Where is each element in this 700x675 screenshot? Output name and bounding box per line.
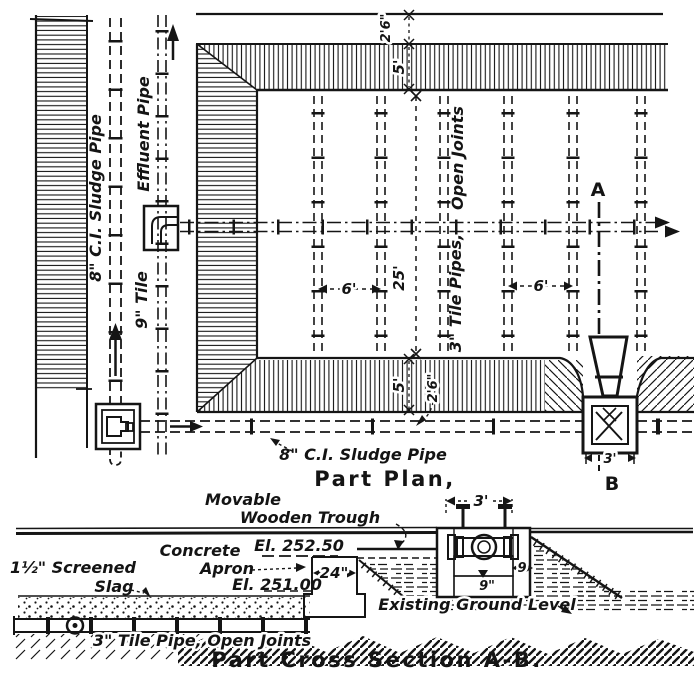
dim-bed-width-label: 25' <box>390 265 408 290</box>
bed-embankment <box>196 14 694 412</box>
dim-top-slope-label: 5' <box>390 59 408 74</box>
pipe-flange <box>504 537 510 557</box>
dim-top-berm-label: 2'6" <box>379 14 394 43</box>
part-plan: 8" C.I. Sludge Pipe Effluent Pipe 9" Til… <box>30 10 694 495</box>
plan-title: Part Plan, <box>314 467 455 491</box>
dim-spacing-left-label: 6' <box>341 280 356 298</box>
elevation-top-label: El. 252.50 <box>254 536 344 555</box>
embankment-fan-left <box>545 360 583 412</box>
sludge-pipe-bottom-label: 8" C.I. Sludge Pipe <box>279 445 447 464</box>
sludge-pipe-vertical-label: 8" C.I. Sludge Pipe <box>86 114 105 282</box>
cross-section: 3' 9 9" 24" Movable Wooden Trough El. 25… <box>10 490 694 672</box>
dim-spacing-right-label: 6' <box>533 277 548 295</box>
dim-wall-bottom-arrow <box>478 570 488 578</box>
tile-lateral <box>637 96 645 355</box>
left-wall <box>30 15 93 458</box>
tile-laterals-label: 3" Tile Pipes, <box>446 234 465 352</box>
dim-apron-label: 24" <box>320 564 349 582</box>
dim-trough-label: 3' <box>473 492 488 510</box>
tile-main-label: 9" Tile <box>132 271 151 329</box>
section-marker-b: B <box>605 473 619 495</box>
pipe-flange <box>457 537 463 557</box>
screened-label-1: 1½" Screened <box>10 558 136 577</box>
section-marker-a: A <box>591 179 606 201</box>
dim-wall-bottom-label: 9" <box>479 579 495 594</box>
tile-lateral <box>314 96 322 355</box>
section-title: Part Cross Section A-B. <box>211 648 542 672</box>
flow-arrow-right-icon <box>190 421 203 432</box>
movable-label-1: Movable <box>205 490 281 509</box>
existing-ground-label: Existing Ground Level <box>378 595 576 614</box>
slag-layer <box>18 596 310 618</box>
tile-lateral <box>377 96 385 355</box>
engineering-drawing: 8" C.I. Sludge Pipe Effluent Pipe 9" Til… <box>0 0 700 675</box>
valve-icon <box>603 408 616 421</box>
tile-lateral <box>569 96 577 355</box>
gate-valve-box <box>96 404 140 449</box>
dim-bottom-slope-label: 5' <box>390 377 408 392</box>
dim-wall-side-label: 9 <box>517 561 526 576</box>
screened-label-2: Slag <box>94 577 133 596</box>
tile-lateral <box>504 96 512 355</box>
wooden-trough-section <box>357 549 438 558</box>
tile-laterals <box>314 96 645 355</box>
open-joints-label: Open Joints <box>448 106 467 210</box>
valve-icon <box>596 412 622 440</box>
dim-outlet-box-label: 3' <box>603 452 616 467</box>
trough-funnel <box>590 337 627 396</box>
embankment-fan-right <box>637 356 694 412</box>
top-edge <box>16 528 693 534</box>
concrete-leader <box>252 563 306 572</box>
junction-box <box>144 206 178 250</box>
elevation-apron-label: El. 251.00 <box>232 575 322 594</box>
flow-arrow-right-icon <box>665 226 680 238</box>
sludge-pipe-vertical <box>109 18 122 465</box>
flow-arrow-up-icon <box>167 24 179 41</box>
concrete-label-1: Concrete <box>160 541 241 560</box>
effluent-pipe-label: Effluent Pipe <box>134 76 153 192</box>
dim-bottom-berm-label: 2'6" <box>426 374 441 403</box>
movable-label-2: Wooden Trough <box>240 508 380 527</box>
